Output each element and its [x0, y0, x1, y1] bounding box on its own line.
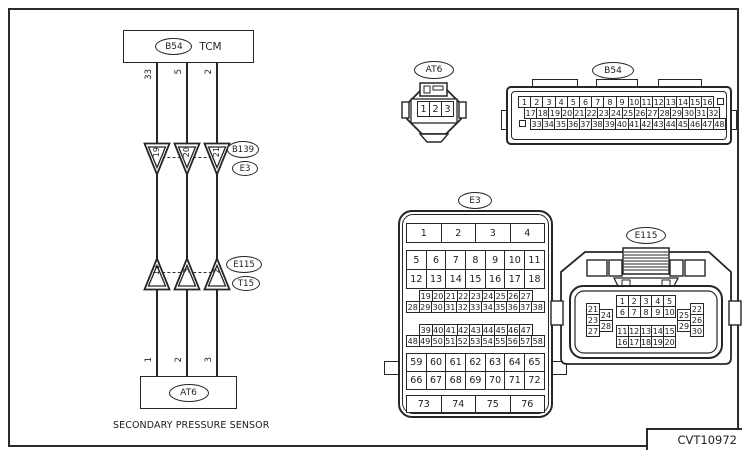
pin-63: 63	[485, 353, 506, 372]
figure-code-box: CVT10972	[646, 428, 742, 450]
pin-57: 57	[519, 335, 533, 347]
b54-keyway-bottom-left	[519, 120, 526, 127]
tcm-connector-label: B54	[155, 38, 192, 55]
pin-9: 9	[485, 250, 506, 270]
pin-35: 35	[494, 301, 508, 313]
pin-10: 10	[504, 250, 525, 270]
pin-14: 14	[445, 269, 466, 289]
pin-30: 30	[690, 325, 704, 337]
pin-29: 29	[677, 320, 691, 332]
pin-3: 3	[441, 101, 454, 117]
junction2-pin-2: 3	[183, 268, 191, 273]
e3-pinout-label: E3	[458, 192, 492, 209]
tcm-pin-2: 2	[205, 69, 214, 74]
pin-6: 6	[426, 250, 447, 270]
sensor-caption: SECONDARY PRESSURE SENSOR	[113, 420, 269, 431]
e115-center-top-row-2: 678910	[616, 306, 676, 318]
pin-15: 15	[465, 269, 486, 289]
pin-48: 48	[406, 335, 420, 347]
sensor-pin-3: 3	[205, 357, 214, 362]
pin-75: 75	[475, 395, 511, 413]
pin-7: 7	[445, 250, 466, 270]
connector-label-t15: T15	[232, 276, 260, 291]
tcm-label: TCM	[199, 41, 221, 53]
pin-59: 59	[406, 353, 427, 372]
pin-12: 12	[406, 269, 427, 289]
pin-11: 11	[524, 250, 545, 270]
pin-28: 28	[599, 320, 613, 332]
b54-keyway-top-right	[717, 98, 724, 105]
connector-label-e115-schematic: E115	[226, 256, 262, 273]
pin-58: 58	[531, 335, 545, 347]
e115-left-col-inner: 2428	[599, 309, 613, 332]
pin-71: 71	[504, 371, 525, 390]
pin-8: 8	[465, 250, 486, 270]
pin-62: 62	[465, 353, 486, 372]
pin-20: 20	[663, 336, 676, 348]
e115-center-bottom-row-2: 1617181920	[616, 336, 676, 348]
pin-2: 2	[441, 223, 477, 243]
pin-28: 28	[406, 301, 420, 313]
at6-pin-row: 123	[417, 101, 454, 117]
pin-18: 18	[524, 269, 545, 289]
b54-pin-row-3: 33343536373839404142434445464748	[530, 118, 726, 130]
pin-56: 56	[506, 335, 520, 347]
junction2-pin-3: 2	[213, 268, 221, 273]
pin-29: 29	[419, 301, 433, 313]
junction2-pin-1: 12	[153, 265, 161, 275]
e115-right-col-inner: 2529	[677, 309, 691, 332]
pin-34: 34	[481, 301, 495, 313]
e115-pinout-label: E115	[626, 227, 666, 244]
pin-72: 72	[524, 371, 545, 390]
sensor-pin-2: 2	[175, 357, 184, 362]
pin-30: 30	[431, 301, 445, 313]
pin-68: 68	[445, 371, 466, 390]
pin-53: 53	[469, 335, 483, 347]
pin-50: 50	[431, 335, 445, 347]
pin-5: 5	[406, 250, 427, 270]
splice-triangle-up-2	[173, 257, 201, 291]
wire-3	[216, 63, 218, 376]
e3-pin-row-b: 567891011	[406, 250, 545, 270]
pin-55: 55	[494, 335, 508, 347]
e3-pin-row-c: 12131415161718	[406, 269, 545, 289]
pin-73: 73	[406, 395, 442, 413]
pin-31: 31	[444, 301, 458, 313]
pin-27: 27	[586, 325, 600, 337]
sensor-connector-label: AT6	[169, 384, 209, 402]
sensor-box: AT6	[140, 376, 237, 409]
pin-61: 61	[445, 353, 466, 372]
pin-1: 1	[406, 223, 442, 243]
e3-pin-row-e: 2829303132333435363738	[406, 301, 545, 313]
e115-left-col-outer: 212327	[586, 303, 600, 337]
pin-17: 17	[504, 269, 525, 289]
pin-38: 38	[531, 301, 545, 313]
pin-10: 10	[663, 306, 676, 318]
pin-70: 70	[485, 371, 506, 390]
tcm-box: B54 TCM	[123, 30, 254, 63]
pin-33: 33	[469, 301, 483, 313]
at6-pinout-label: AT6	[414, 61, 454, 79]
sensor-pin-1: 1	[145, 357, 154, 362]
wire-1	[156, 63, 158, 376]
junction1-pin-1: 19	[153, 147, 161, 157]
pin-64: 64	[504, 353, 525, 372]
pin-60: 60	[426, 353, 447, 372]
figure-code: CVT10972	[677, 433, 737, 447]
pin-54: 54	[481, 335, 495, 347]
e3-pin-row-i: 66676869707172	[406, 371, 545, 390]
pin-67: 67	[426, 371, 447, 390]
e3-pin-row-g: 4849505152535455565758	[406, 335, 545, 347]
tcm-pin-33: 33	[145, 69, 154, 80]
e3-pin-row-j: 73747576	[406, 395, 545, 413]
tcm-pin-5: 5	[175, 69, 184, 74]
pin-16: 16	[485, 269, 506, 289]
e115-right-col-outer: 222630	[690, 303, 704, 337]
junction1-pin-2: 20	[183, 147, 191, 157]
junction1-pin-3: 21	[213, 147, 221, 157]
pin-51: 51	[444, 335, 458, 347]
wiring-diagram: B54 TCM 33 5 2 19 20 21 B139 E3 12 3 2 E…	[0, 0, 751, 459]
e3-pin-row-h: 59606162636465	[406, 353, 545, 372]
b54-pinout-label: B54	[592, 62, 634, 79]
pin-4: 4	[510, 223, 546, 243]
pin-49: 49	[419, 335, 433, 347]
wire-2	[186, 63, 188, 376]
connector-label-e3-schematic: E3	[232, 161, 258, 176]
pin-76: 76	[510, 395, 546, 413]
pin-74: 74	[441, 395, 477, 413]
connector-label-b139: B139	[227, 141, 259, 158]
pin-52: 52	[456, 335, 470, 347]
pin-36: 36	[506, 301, 520, 313]
e3-pin-row-a: 1234	[406, 223, 545, 243]
pin-13: 13	[426, 269, 447, 289]
pin-69: 69	[465, 371, 486, 390]
pin-3: 3	[475, 223, 511, 243]
pin-48: 48	[713, 118, 726, 130]
pin-65: 65	[524, 353, 545, 372]
pin-37: 37	[519, 301, 533, 313]
pin-66: 66	[406, 371, 427, 390]
pin-32: 32	[456, 301, 470, 313]
